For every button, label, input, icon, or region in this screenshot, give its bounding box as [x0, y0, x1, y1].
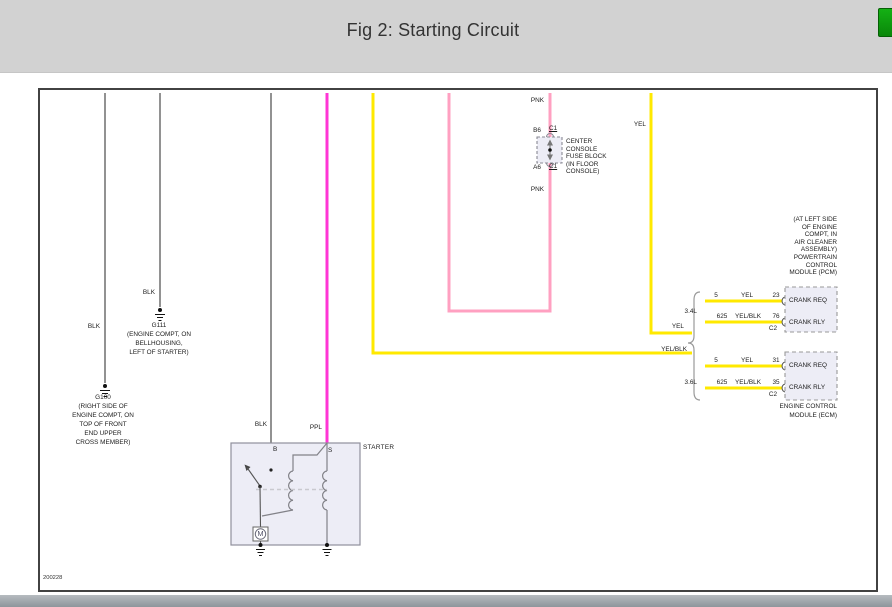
connector-label-c2-pcm: C2: [763, 325, 783, 332]
signal-label-crank-req-ecm: CRANK REQ: [789, 362, 827, 369]
connector-label-c2-ecm: C2: [763, 391, 783, 398]
pcm-note-line: (AT LEFT SIDE: [700, 216, 837, 224]
ground-location-line: CROSS MEMBER): [43, 438, 163, 447]
app-window: Fig 2: Starting Circuit: [0, 0, 892, 607]
fuse-block-label: CENTER CONSOLE FUSE BLOCK (IN FLOOR CONS…: [566, 138, 607, 176]
signal-label-crank-rly-ecm: CRANK RLY: [789, 384, 825, 391]
figure-doc-number: 200228: [43, 575, 62, 582]
ground-g100-label: G100 (RIGHT SIDE OF ENGINE COMPT, ON TOP…: [43, 393, 163, 447]
wire-color: YEL/BLK: [726, 313, 770, 320]
ground-symbol-g111: [155, 308, 165, 321]
wire-label-blk-g100: BLK: [70, 323, 100, 330]
motor-feed-line: [260, 487, 261, 528]
ground-id: G100: [43, 393, 163, 402]
pcm-note-line: OF ENGINE: [700, 224, 837, 232]
wire-color: YEL: [731, 292, 763, 299]
wire-label-yel-top: YEL: [612, 121, 646, 128]
wire-color: YEL: [731, 357, 763, 364]
pcm-note-line: AIR CLEANER: [700, 239, 837, 247]
pcm-note: (AT LEFT SIDE OF ENGINE COMPT, IN AIR CL…: [700, 216, 837, 277]
fuse-block-label-line: CENTER: [566, 138, 607, 146]
wire-label-pnk-bottom: PNK: [510, 186, 544, 193]
circuit-number: 5: [706, 357, 726, 364]
connector-label-c1-bottom: C1: [549, 163, 557, 170]
pcm-note-line: MODULE (PCM): [700, 269, 837, 277]
ground-location-line: END UPPER: [43, 429, 163, 438]
ecm-box: [785, 352, 837, 400]
wire-label-yelblk: YEL/BLK: [640, 346, 687, 353]
circuit-number: 5: [706, 292, 726, 299]
ground-g111-label: G111 (ENGINE COMPT, ON BELLHOUSING, LEFT…: [99, 321, 219, 357]
ground-location-line: (ENGINE COMPT, ON: [99, 330, 219, 339]
wire-label-yel-mid: YEL: [650, 323, 684, 330]
pin-number: 23: [766, 292, 786, 299]
pin-label-b6: B6: [513, 127, 541, 134]
ground-id: G111: [99, 321, 219, 330]
page-title: Fig 2: Starting Circuit: [0, 20, 866, 41]
pin-label-a6: A6: [513, 164, 541, 171]
signal-label-crank-req-pcm: CRANK REQ: [789, 297, 827, 304]
pcm-note-line: COMPT, IN: [700, 231, 837, 239]
ground-location-line: LEFT OF STARTER): [99, 348, 219, 357]
starter-label: STARTER: [363, 444, 394, 451]
connector-label-c1-top: C1: [549, 125, 557, 132]
motor-letter: M: [254, 530, 267, 537]
terminal-label-b: B: [273, 446, 277, 453]
wire-label-blk-g111: BLK: [125, 289, 155, 296]
wire-pnk-run: [449, 93, 550, 311]
wire-label-pnk-top: PNK: [510, 97, 544, 104]
ground-location-line: (RIGHT SIDE OF: [43, 402, 163, 411]
ecm-name: ENGINE CONTROL MODULE (ECM): [700, 402, 837, 420]
engine-label-34l: 3.4L: [660, 308, 697, 315]
bottom-status-bar: [0, 595, 892, 607]
fuse-junction-dot: [548, 148, 552, 152]
signal-label-crank-rly-pcm: CRANK RLY: [789, 319, 825, 326]
engine-label-36l: 3.6L: [660, 379, 697, 386]
fuse-block-label-line: CONSOLE: [566, 146, 607, 154]
ecm-name-line: ENGINE CONTROL: [700, 402, 837, 411]
terminal-label-s: S: [328, 447, 332, 454]
starter-box: [231, 443, 360, 545]
ground-location-line: ENGINE COMPT, ON: [43, 411, 163, 420]
wire-label-blk-starter: BLK: [237, 421, 267, 428]
wire-color: YEL/BLK: [726, 379, 770, 386]
wire-label-ppl: PPL: [292, 424, 322, 431]
fuse-block-label-line: FUSE BLOCK: [566, 153, 607, 161]
ground-location-line: BELLHOUSING,: [99, 339, 219, 348]
pin-number: 35: [766, 379, 786, 386]
ground-location-line: TOP OF FRONT: [43, 420, 163, 429]
wire-yel-run: [651, 93, 692, 333]
pcm-note-line: ASSEMBLY): [700, 246, 837, 254]
pin-number: 31: [766, 357, 786, 364]
starter-b-stud: [269, 468, 272, 471]
ecm-name-line: MODULE (ECM): [700, 411, 837, 420]
fuse-block-label-line: CONSOLE): [566, 168, 607, 176]
fuse-block-label-line: (IN FLOOR: [566, 161, 607, 169]
pcm-note-line: POWERTRAIN: [700, 254, 837, 262]
pin-number: 76: [766, 313, 786, 320]
title-bar: Fig 2: Starting Circuit: [0, 0, 892, 73]
pcm-note-line: CONTROL: [700, 262, 837, 270]
green-button[interactable]: [878, 8, 892, 37]
